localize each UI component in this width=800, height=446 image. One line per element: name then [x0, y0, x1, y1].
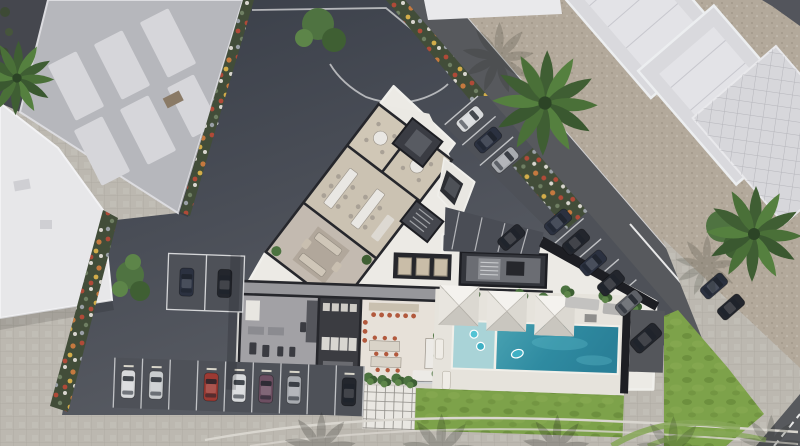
stairs	[478, 258, 501, 280]
car	[341, 378, 356, 406]
elevator-door	[434, 259, 448, 276]
pool-umbrella	[486, 291, 527, 332]
pergola	[363, 384, 417, 430]
pool-deck	[432, 281, 643, 396]
stair-block	[460, 252, 547, 288]
east-parking-pad	[628, 310, 665, 373]
lockers	[306, 300, 318, 342]
elevator-core	[393, 252, 452, 280]
lounge-sofa	[412, 370, 434, 381]
car	[149, 371, 164, 399]
front-parking-row	[113, 358, 365, 417]
pool-umbrella	[438, 285, 479, 326]
car	[204, 373, 219, 401]
elevator-door	[398, 257, 412, 274]
aerial-render-canvas	[0, 0, 800, 446]
dining-table	[371, 357, 401, 368]
car	[258, 375, 273, 403]
dining-table	[369, 341, 399, 352]
site-render	[0, 0, 800, 446]
elevator-door	[416, 258, 430, 275]
car	[286, 376, 301, 404]
car	[121, 370, 136, 398]
reception-desk	[245, 300, 260, 320]
car	[179, 268, 194, 296]
